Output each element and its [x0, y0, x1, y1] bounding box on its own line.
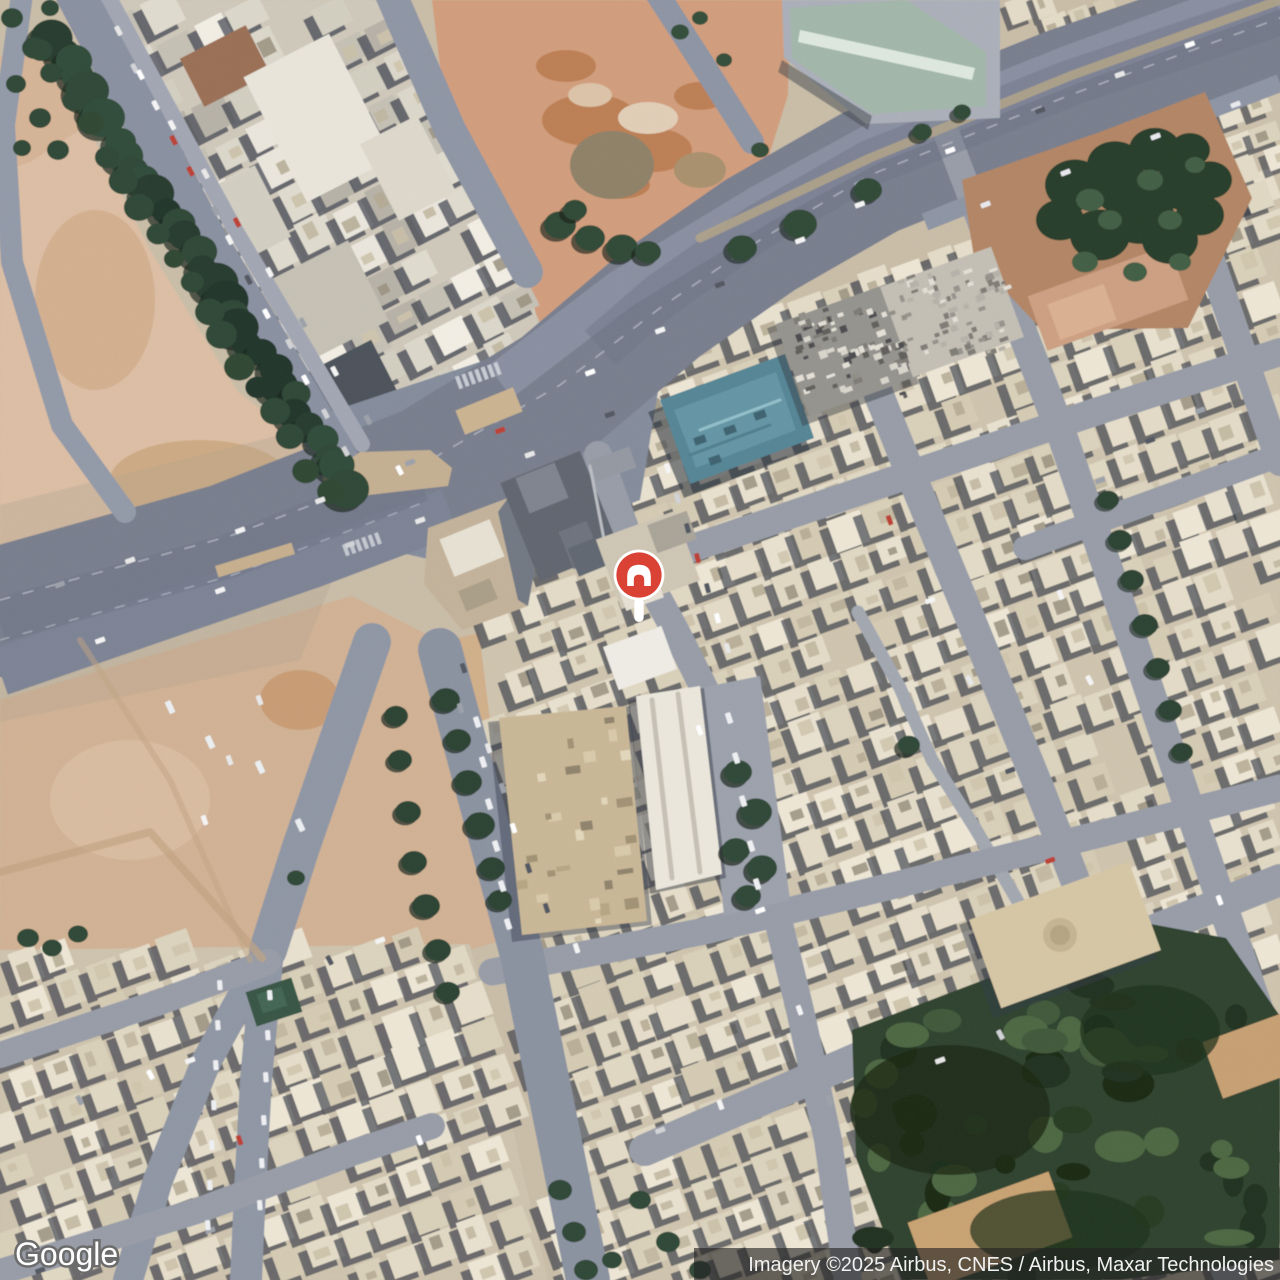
svg-text:Imagery ©2025 Airbus, CNES / A: Imagery ©2025 Airbus, CNES / Airbus, Max…	[748, 1254, 1274, 1276]
svg-text:Google: Google	[15, 1236, 118, 1272]
